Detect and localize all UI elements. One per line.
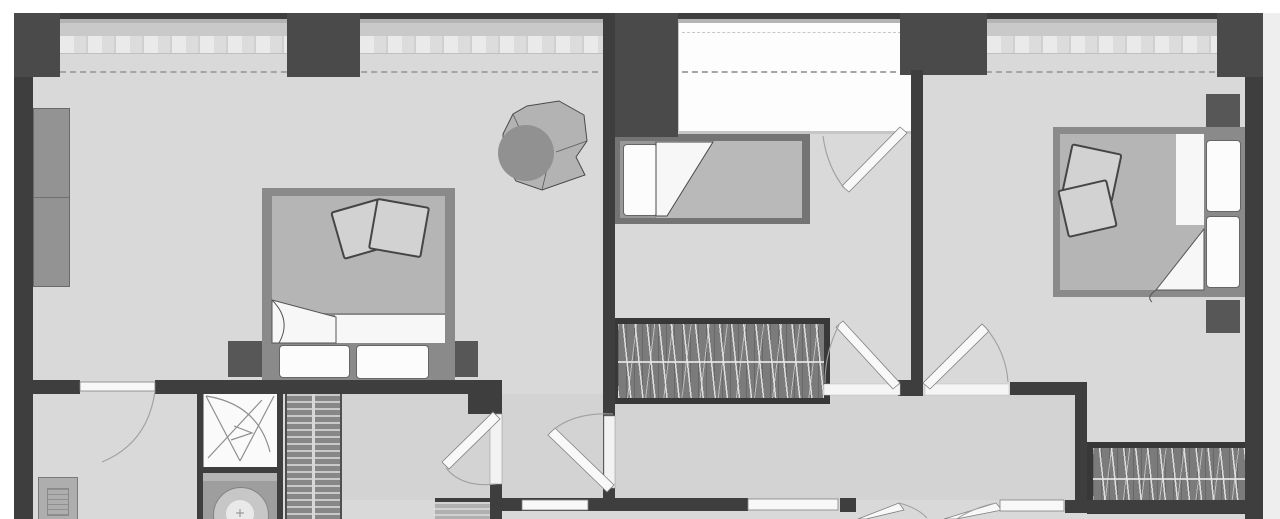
washer-cross — [236, 509, 244, 517]
door-arc-e — [825, 325, 839, 383]
door-leaf-f — [923, 324, 989, 389]
door-leaf-balcony — [842, 127, 907, 192]
floor-plan — [0, 0, 1280, 519]
door-leaf-bottom-1 — [522, 500, 588, 510]
door-arc-balcony — [823, 136, 845, 189]
door-arc-c — [446, 468, 496, 485]
door-leaf-e — [836, 321, 900, 389]
threshold-e — [824, 384, 900, 395]
plan-vector-overlay — [0, 0, 1280, 519]
door-leaf-storage — [80, 382, 155, 391]
door-leaf-bottom-5 — [1000, 500, 1064, 511]
door-leaf-bottom-2 — [748, 499, 838, 510]
right-bed-fold-curl — [1150, 290, 1156, 302]
door-arc-storage — [102, 391, 155, 462]
shower-symbol — [206, 396, 274, 461]
round-armchair — [498, 125, 554, 181]
right-bed-blanket-fold — [1156, 229, 1204, 290]
door-leaf-bottom-4 — [944, 503, 1002, 519]
door-leaf-bottom-3 — [858, 503, 904, 519]
door-arc-f — [986, 328, 1008, 382]
threshold-f — [925, 384, 1009, 395]
middle-bed-blanket-fold — [656, 142, 713, 216]
